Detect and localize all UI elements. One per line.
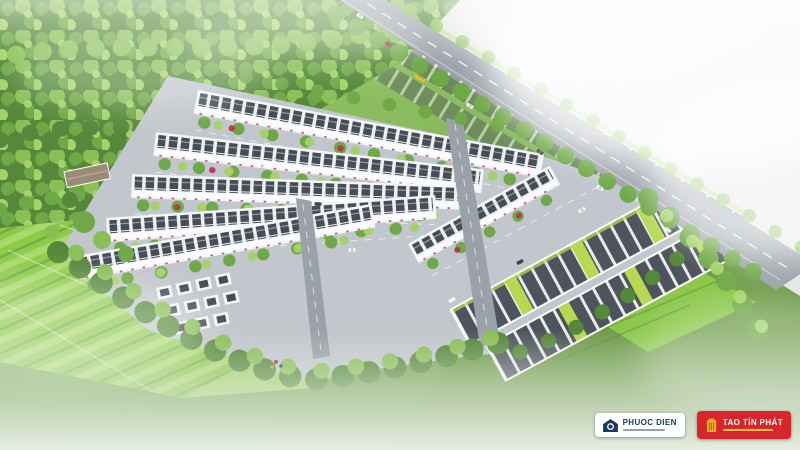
tao-tin-phat-tagline-bar	[723, 429, 773, 431]
top-haze	[0, 0, 800, 64]
tao-tin-phat-logo: TAO TÍN PHÁT	[697, 411, 791, 439]
house-swirl-icon	[603, 419, 618, 432]
aerial-render: PHUOC DIEN TAO TÍN PHÁT	[0, 0, 800, 450]
phuoc-dien-name: PHUOC DIEN	[623, 419, 677, 427]
scene-canvas	[0, 0, 800, 450]
logo-row: PHUOC DIEN TAO TÍN PHÁT	[595, 411, 791, 439]
tao-tin-phat-name: TAO TÍN PHÁT	[723, 419, 783, 427]
phuoc-dien-logo: PHUOC DIEN	[595, 413, 685, 437]
phuoc-dien-tagline-bar	[623, 429, 665, 431]
gold-building-icon	[705, 418, 718, 433]
